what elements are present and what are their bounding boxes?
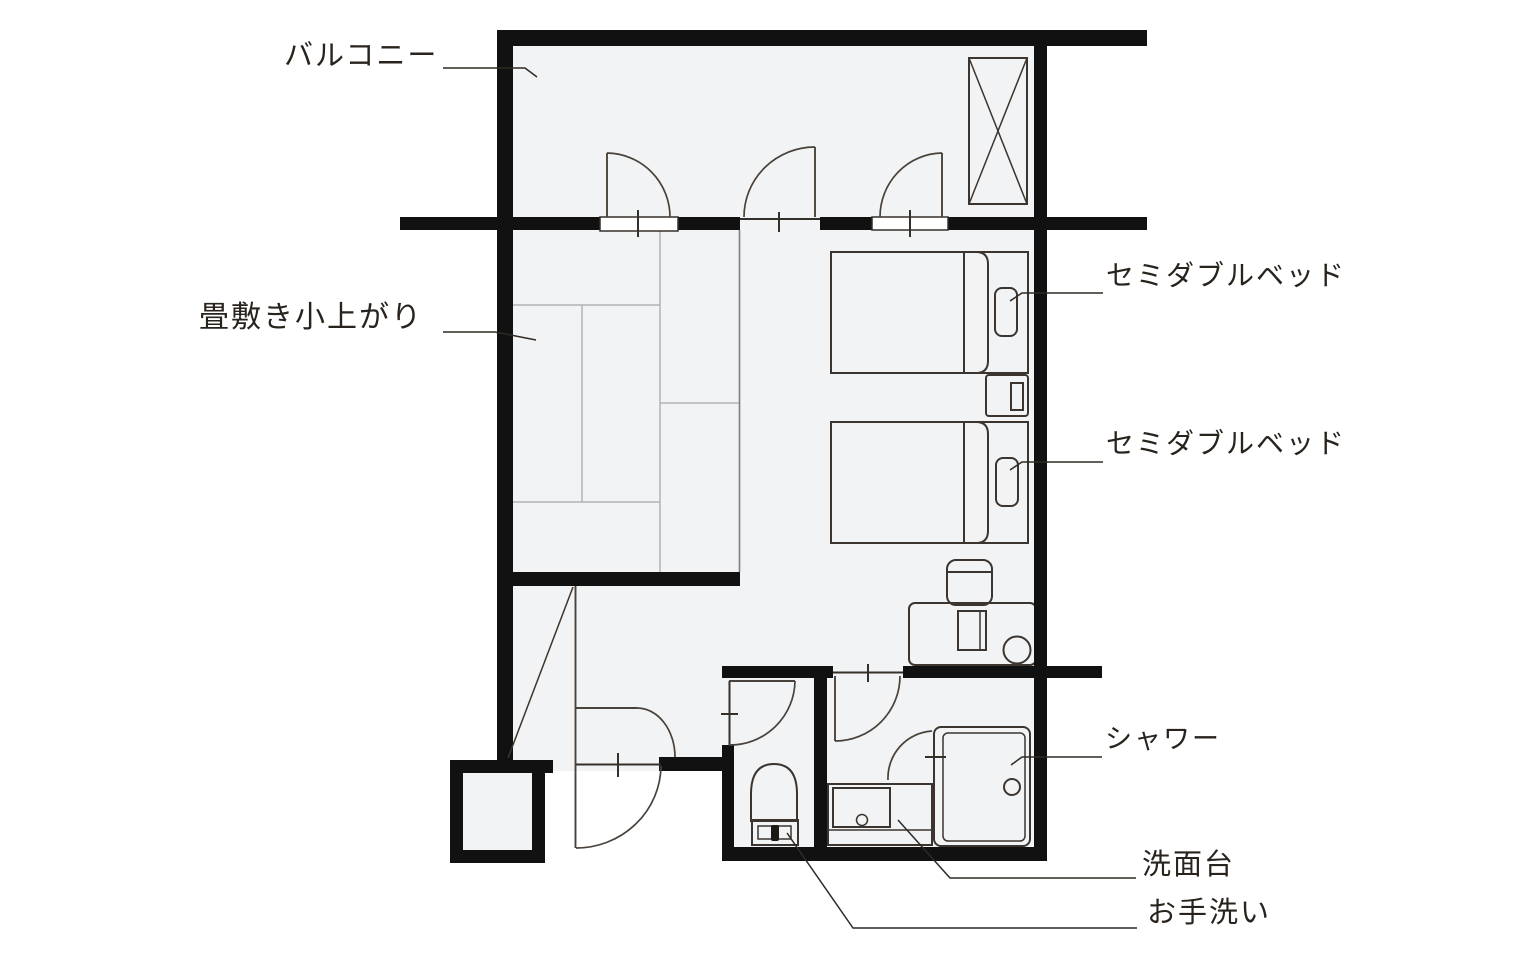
toilet-flush-handle	[771, 825, 779, 841]
wall-bedroom-top-b	[678, 217, 740, 230]
wall-wc-divider	[814, 666, 827, 847]
wall-bottom	[722, 847, 1046, 861]
floor-plan-canvas: バルコニー 畳敷き小上がり セミダブルベッド セミダブルベッド シャワー 洗面台…	[0, 0, 1536, 965]
door-swing-arc	[576, 766, 661, 848]
label-toilet: お手洗い	[1147, 897, 1271, 928]
wall-bedroom-south-b	[903, 666, 1102, 678]
floor-entry-hall	[505, 580, 740, 771]
label-balcony: バルコニー	[284, 40, 438, 71]
wall-bedroom-top-d	[948, 217, 1147, 230]
label-bed-bottom: セミダブルベッド	[1106, 429, 1346, 459]
wall-entry-right	[659, 757, 722, 771]
wall-right	[1034, 41, 1047, 861]
wall-left	[497, 30, 513, 771]
wall-bedroom-top-a	[400, 217, 600, 230]
wall-top	[497, 30, 1147, 46]
floor-plan-drawing	[0, 0, 1536, 965]
label-tatami: 畳敷き小上がり	[199, 302, 423, 334]
label-shower: シャワー	[1105, 725, 1221, 754]
floor-areas	[463, 38, 1040, 861]
label-bed-top: セミダブルベッド	[1106, 261, 1346, 291]
wall-bedroom-top-c	[820, 217, 872, 230]
label-washbasin: 洗面台	[1142, 849, 1235, 880]
wall-wc-left	[722, 745, 734, 847]
floor-shaft	[463, 773, 532, 850]
floor-wet-area	[722, 660, 1040, 861]
wall-shaft-right	[532, 760, 545, 863]
wall-shaft-left	[450, 760, 463, 863]
wall-tatami-south	[507, 572, 740, 586]
wall-shaft-bottom	[450, 850, 545, 863]
